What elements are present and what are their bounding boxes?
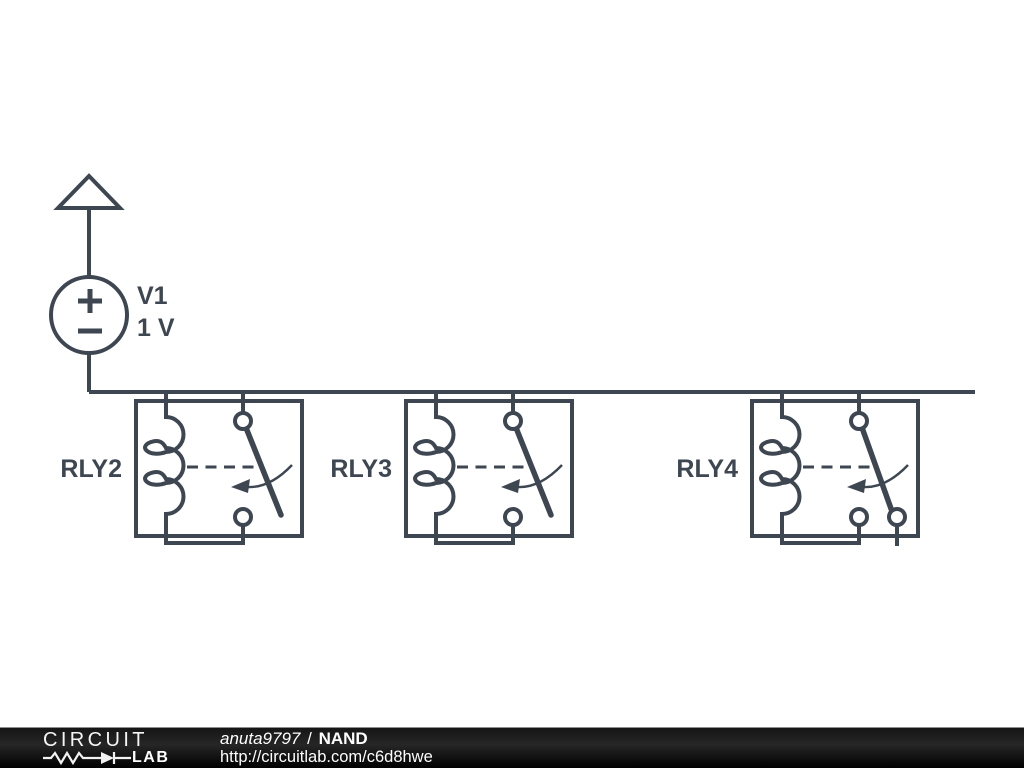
relay-rly4[interactable]: RLY4 bbox=[676, 390, 918, 546]
logo-word-circuit: CIRCUIT bbox=[43, 730, 175, 750]
vcc-flag-symbol[interactable] bbox=[58, 176, 120, 279]
circuit-title: NAND bbox=[319, 729, 368, 748]
separator: / bbox=[305, 729, 314, 748]
relay-name-label: RLY4 bbox=[676, 455, 738, 483]
relay-symbol bbox=[406, 390, 572, 543]
circuitlab-share-image: V1 1 V RLY2 RLY3 RLY4 CIRCUIT bbox=[0, 0, 1024, 768]
relay-rly2[interactable]: RLY2 bbox=[60, 390, 302, 543]
relay-symbol bbox=[136, 390, 302, 543]
circuit-url: http://circuitlab.com/c6d8hwe bbox=[220, 748, 433, 766]
source-name-label: V1 bbox=[137, 282, 168, 310]
author-name: anuta9797 bbox=[220, 729, 300, 748]
switch-blade[interactable] bbox=[517, 429, 552, 515]
circuitlab-logo[interactable]: CIRCUIT LAB bbox=[43, 730, 175, 766]
switch-blade[interactable] bbox=[863, 429, 892, 510]
source-value-label: 1 V bbox=[137, 314, 175, 342]
relay-name-label: RLY2 bbox=[60, 455, 122, 483]
resistor-diode-icon bbox=[43, 750, 131, 766]
voltage-source-v1[interactable]: V1 1 V bbox=[51, 277, 175, 392]
share-info: anuta9797 / NAND http://circuitlab.com/c… bbox=[220, 729, 433, 767]
author-title-line: anuta9797 / NAND bbox=[220, 729, 433, 748]
relay-rly3[interactable]: RLY3 bbox=[330, 390, 572, 543]
logo-word-lab: LAB bbox=[132, 750, 169, 766]
switch-blade[interactable] bbox=[247, 429, 282, 515]
second-throw-contact bbox=[889, 509, 905, 525]
relay-name-label: RLY3 bbox=[330, 455, 392, 483]
schematic-canvas: V1 1 V RLY2 RLY3 RLY4 bbox=[0, 0, 1024, 727]
footer-bar: CIRCUIT LAB anuta9797 / NAND http://circ… bbox=[0, 727, 1024, 768]
